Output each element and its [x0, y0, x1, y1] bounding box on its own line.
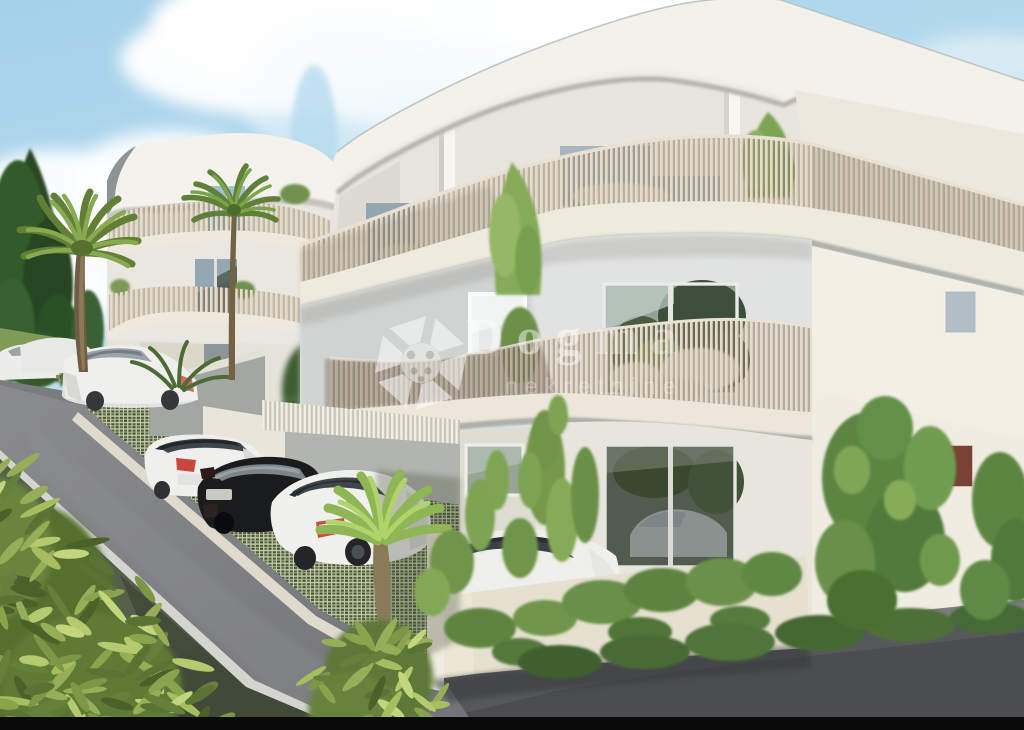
svg-text:Dogma: Dogma — [466, 309, 690, 366]
svg-text:nekretnine: nekretnine — [505, 373, 682, 399]
